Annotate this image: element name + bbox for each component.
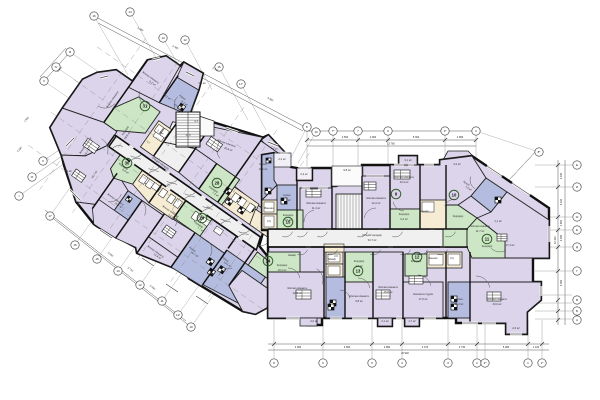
svg-text:15: 15: [95, 257, 99, 261]
svg-text:16: 16: [92, 14, 96, 18]
svg-text:3,1 м²: 3,1 м²: [404, 158, 411, 162]
svg-text:12: 12: [183, 38, 187, 42]
svg-text:11,7 м²: 11,7 м²: [476, 229, 485, 233]
svg-text:20 940: 20 940: [401, 352, 409, 355]
svg-text:2,2 м²: 2,2 м²: [300, 172, 307, 176]
svg-text:3,2 м²: 3,2 м²: [453, 162, 460, 166]
svg-text:2,6: 2,6: [334, 254, 338, 258]
svg-text:4,7 м²: 4,7 м²: [284, 218, 291, 222]
svg-text:2 890: 2 890: [384, 346, 391, 349]
svg-text:12,3 м²: 12,3 м²: [293, 291, 302, 295]
svg-text:3,1 м²: 3,1 м²: [198, 81, 205, 85]
svg-text:1 800: 1 800: [560, 219, 563, 226]
svg-text:14: 14: [128, 10, 132, 14]
svg-text:13 760: 13 760: [387, 143, 395, 146]
svg-text:13: 13: [116, 269, 120, 273]
svg-text:Жилая комната: Жилая комната: [349, 294, 369, 298]
svg-text:С/у: С/у: [267, 219, 272, 223]
svg-text:2 900: 2 900: [370, 136, 377, 139]
svg-text:И: И: [576, 185, 578, 189]
svg-text:Коридор: Коридор: [399, 212, 410, 216]
svg-text:IV: IV: [55, 65, 58, 69]
svg-text:С/у: С/у: [450, 256, 455, 260]
svg-text:Жилая комната: Жилая комната: [487, 297, 507, 301]
svg-text:Ж: Ж: [576, 215, 579, 219]
svg-text:X: X: [42, 159, 44, 163]
svg-text:15,8 м²: 15,8 м²: [384, 290, 393, 294]
svg-text:7,7 м²: 7,7 м²: [283, 198, 290, 202]
svg-text:Б: Б: [576, 309, 578, 313]
svg-text:Коридор: Коридор: [411, 259, 422, 263]
svg-text:17,4 м²: 17,4 м²: [506, 243, 515, 247]
svg-text:10: 10: [314, 130, 318, 134]
svg-text:IX: IX: [31, 175, 34, 179]
svg-text:А: А: [576, 318, 578, 322]
svg-text:4,1: 4,1: [194, 119, 198, 123]
svg-text:4 560: 4 560: [344, 346, 351, 349]
svg-text:10 210: 10 210: [554, 236, 557, 244]
svg-text:1,7 м²: 1,7 м²: [408, 319, 415, 323]
svg-text:16: 16: [73, 243, 77, 247]
svg-text:4 470: 4 470: [422, 346, 429, 349]
svg-text:Ванная: Ванная: [264, 206, 274, 210]
svg-text:17: 17: [48, 214, 52, 218]
svg-text:17': 17': [239, 82, 243, 86]
svg-text:9,8 м²: 9,8 м²: [343, 168, 350, 172]
svg-text:28: 28: [215, 181, 220, 186]
svg-text:2,3 м²: 2,3 м²: [64, 169, 71, 173]
svg-text:11: 11: [485, 237, 490, 242]
svg-text:2 730: 2 730: [459, 346, 466, 349]
svg-text:Кухня: Кухня: [259, 162, 267, 166]
svg-text:Коридор: Коридор: [482, 244, 493, 248]
svg-text:11,1 м²: 11,1 м²: [259, 167, 268, 171]
svg-text:Жилая комната: Жилая комната: [470, 224, 490, 228]
svg-text:23,0 м²: 23,0 м²: [493, 302, 502, 306]
svg-text:4 900: 4 900: [295, 346, 302, 349]
svg-text:5 280: 5 280: [503, 346, 510, 349]
svg-text:В: В: [576, 298, 578, 302]
svg-text:Коридор: Коридор: [453, 214, 464, 218]
svg-text:Жилая комната: Жилая комната: [378, 285, 398, 289]
svg-text:9,8 м²: 9,8 м²: [355, 299, 362, 303]
svg-text:2,0 м²: 2,0 м²: [310, 319, 317, 323]
svg-text:Шкаф: Шкаф: [288, 253, 296, 257]
svg-text:10: 10: [189, 325, 193, 329]
svg-text:17,5: 17,5: [185, 133, 191, 137]
svg-text:31: 31: [143, 104, 148, 109]
svg-text:Жилая комната: Жилая комната: [394, 175, 414, 179]
svg-text:1,1 м²: 1,1 м²: [494, 219, 501, 223]
svg-text:Жилая комната: Жилая комната: [366, 196, 386, 200]
svg-text:6,4 м²: 6,4 м²: [400, 217, 407, 221]
svg-text:Жилая комната: Жилая комната: [287, 286, 307, 290]
svg-text:Ванная: Ванная: [428, 256, 438, 260]
svg-text:3 390: 3 390: [560, 279, 563, 286]
svg-text:Е: Е: [576, 163, 578, 167]
svg-text:Е: Е: [576, 228, 578, 232]
svg-text:Кухня: Кухня: [455, 297, 463, 301]
svg-text:11: 11: [160, 299, 163, 303]
svg-text:12: 12: [138, 283, 142, 287]
svg-text:V: V: [43, 79, 45, 83]
svg-text:2,2 м²: 2,2 м²: [278, 157, 285, 161]
svg-text:30: 30: [125, 161, 130, 166]
svg-text:Коридор: Коридор: [277, 263, 288, 267]
svg-text:2 960: 2 960: [457, 136, 464, 139]
svg-text:1 100: 1 100: [533, 346, 540, 349]
svg-text:10': 10': [176, 313, 180, 317]
svg-text:11,2 м²: 11,2 м²: [455, 302, 464, 306]
svg-text:14: 14: [266, 259, 271, 264]
svg-text:10,2 м²: 10,2 м²: [278, 268, 287, 272]
svg-text:13: 13: [161, 36, 165, 40]
svg-text:2 190: 2 190: [560, 172, 563, 179]
svg-text:4 120: 4 120: [560, 198, 563, 205]
svg-text:13: 13: [356, 269, 361, 274]
svg-text:10: 10: [452, 193, 457, 198]
svg-text:5 300: 5 300: [413, 136, 420, 139]
svg-text:12: 12: [415, 255, 420, 260]
svg-text:34,7 м²: 34,7 м²: [368, 238, 377, 242]
svg-text:2,6 м²: 2,6 м²: [512, 326, 519, 330]
svg-text:17,0 м²: 17,0 м²: [419, 297, 428, 301]
svg-text:Коридор: Коридор: [283, 213, 294, 217]
svg-text:Д: Д: [576, 245, 578, 249]
svg-text:Комната-студия: Комната-студия: [413, 292, 433, 296]
svg-text:7,3 м²: 7,3 м²: [355, 264, 362, 268]
svg-text:10,4 м²: 10,4 м²: [400, 180, 409, 184]
svg-text:2,1 м²: 2,1 м²: [381, 319, 388, 323]
svg-text:2 290: 2 290: [560, 234, 563, 241]
svg-text:12,2 м²: 12,2 м²: [372, 201, 381, 205]
svg-text:Жилая комната: Жилая комната: [306, 201, 326, 205]
svg-text:Ванная: Ванная: [419, 209, 429, 213]
svg-text:Общий коридор: Общий коридор: [362, 233, 382, 237]
svg-text:III: III: [69, 50, 72, 54]
svg-text:11,4 м²: 11,4 м²: [312, 206, 321, 210]
svg-text:Кухня: Кухня: [283, 193, 291, 197]
svg-text:Коридор: Коридор: [354, 259, 365, 263]
svg-text:29: 29: [200, 216, 205, 221]
svg-text:2 500: 2 500: [342, 136, 349, 139]
